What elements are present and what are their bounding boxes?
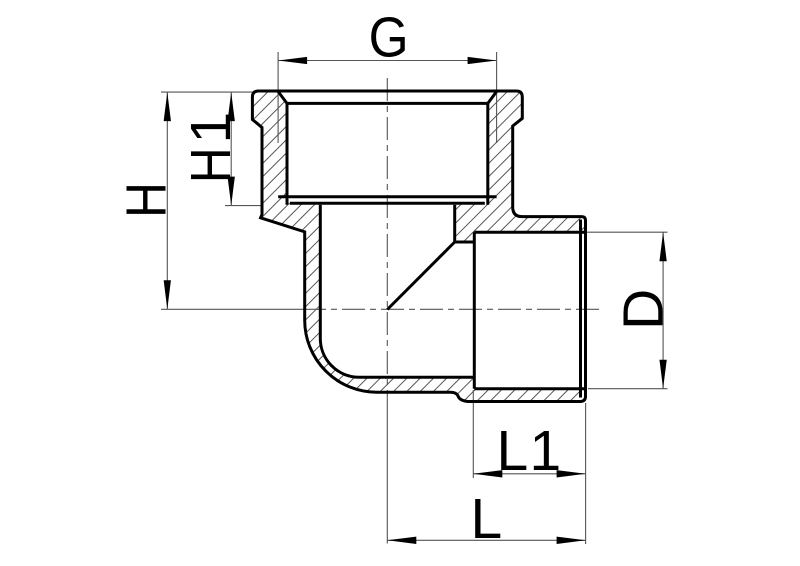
svg-text:H: H — [115, 182, 179, 218]
svg-text:H: H — [179, 147, 243, 183]
svg-text:1: 1 — [530, 419, 562, 483]
svg-text:G: G — [369, 6, 409, 70]
svg-text:D: D — [611, 289, 675, 330]
svg-text:L: L — [497, 419, 529, 483]
svg-text:1: 1 — [179, 112, 243, 144]
svg-text:L: L — [470, 487, 502, 551]
